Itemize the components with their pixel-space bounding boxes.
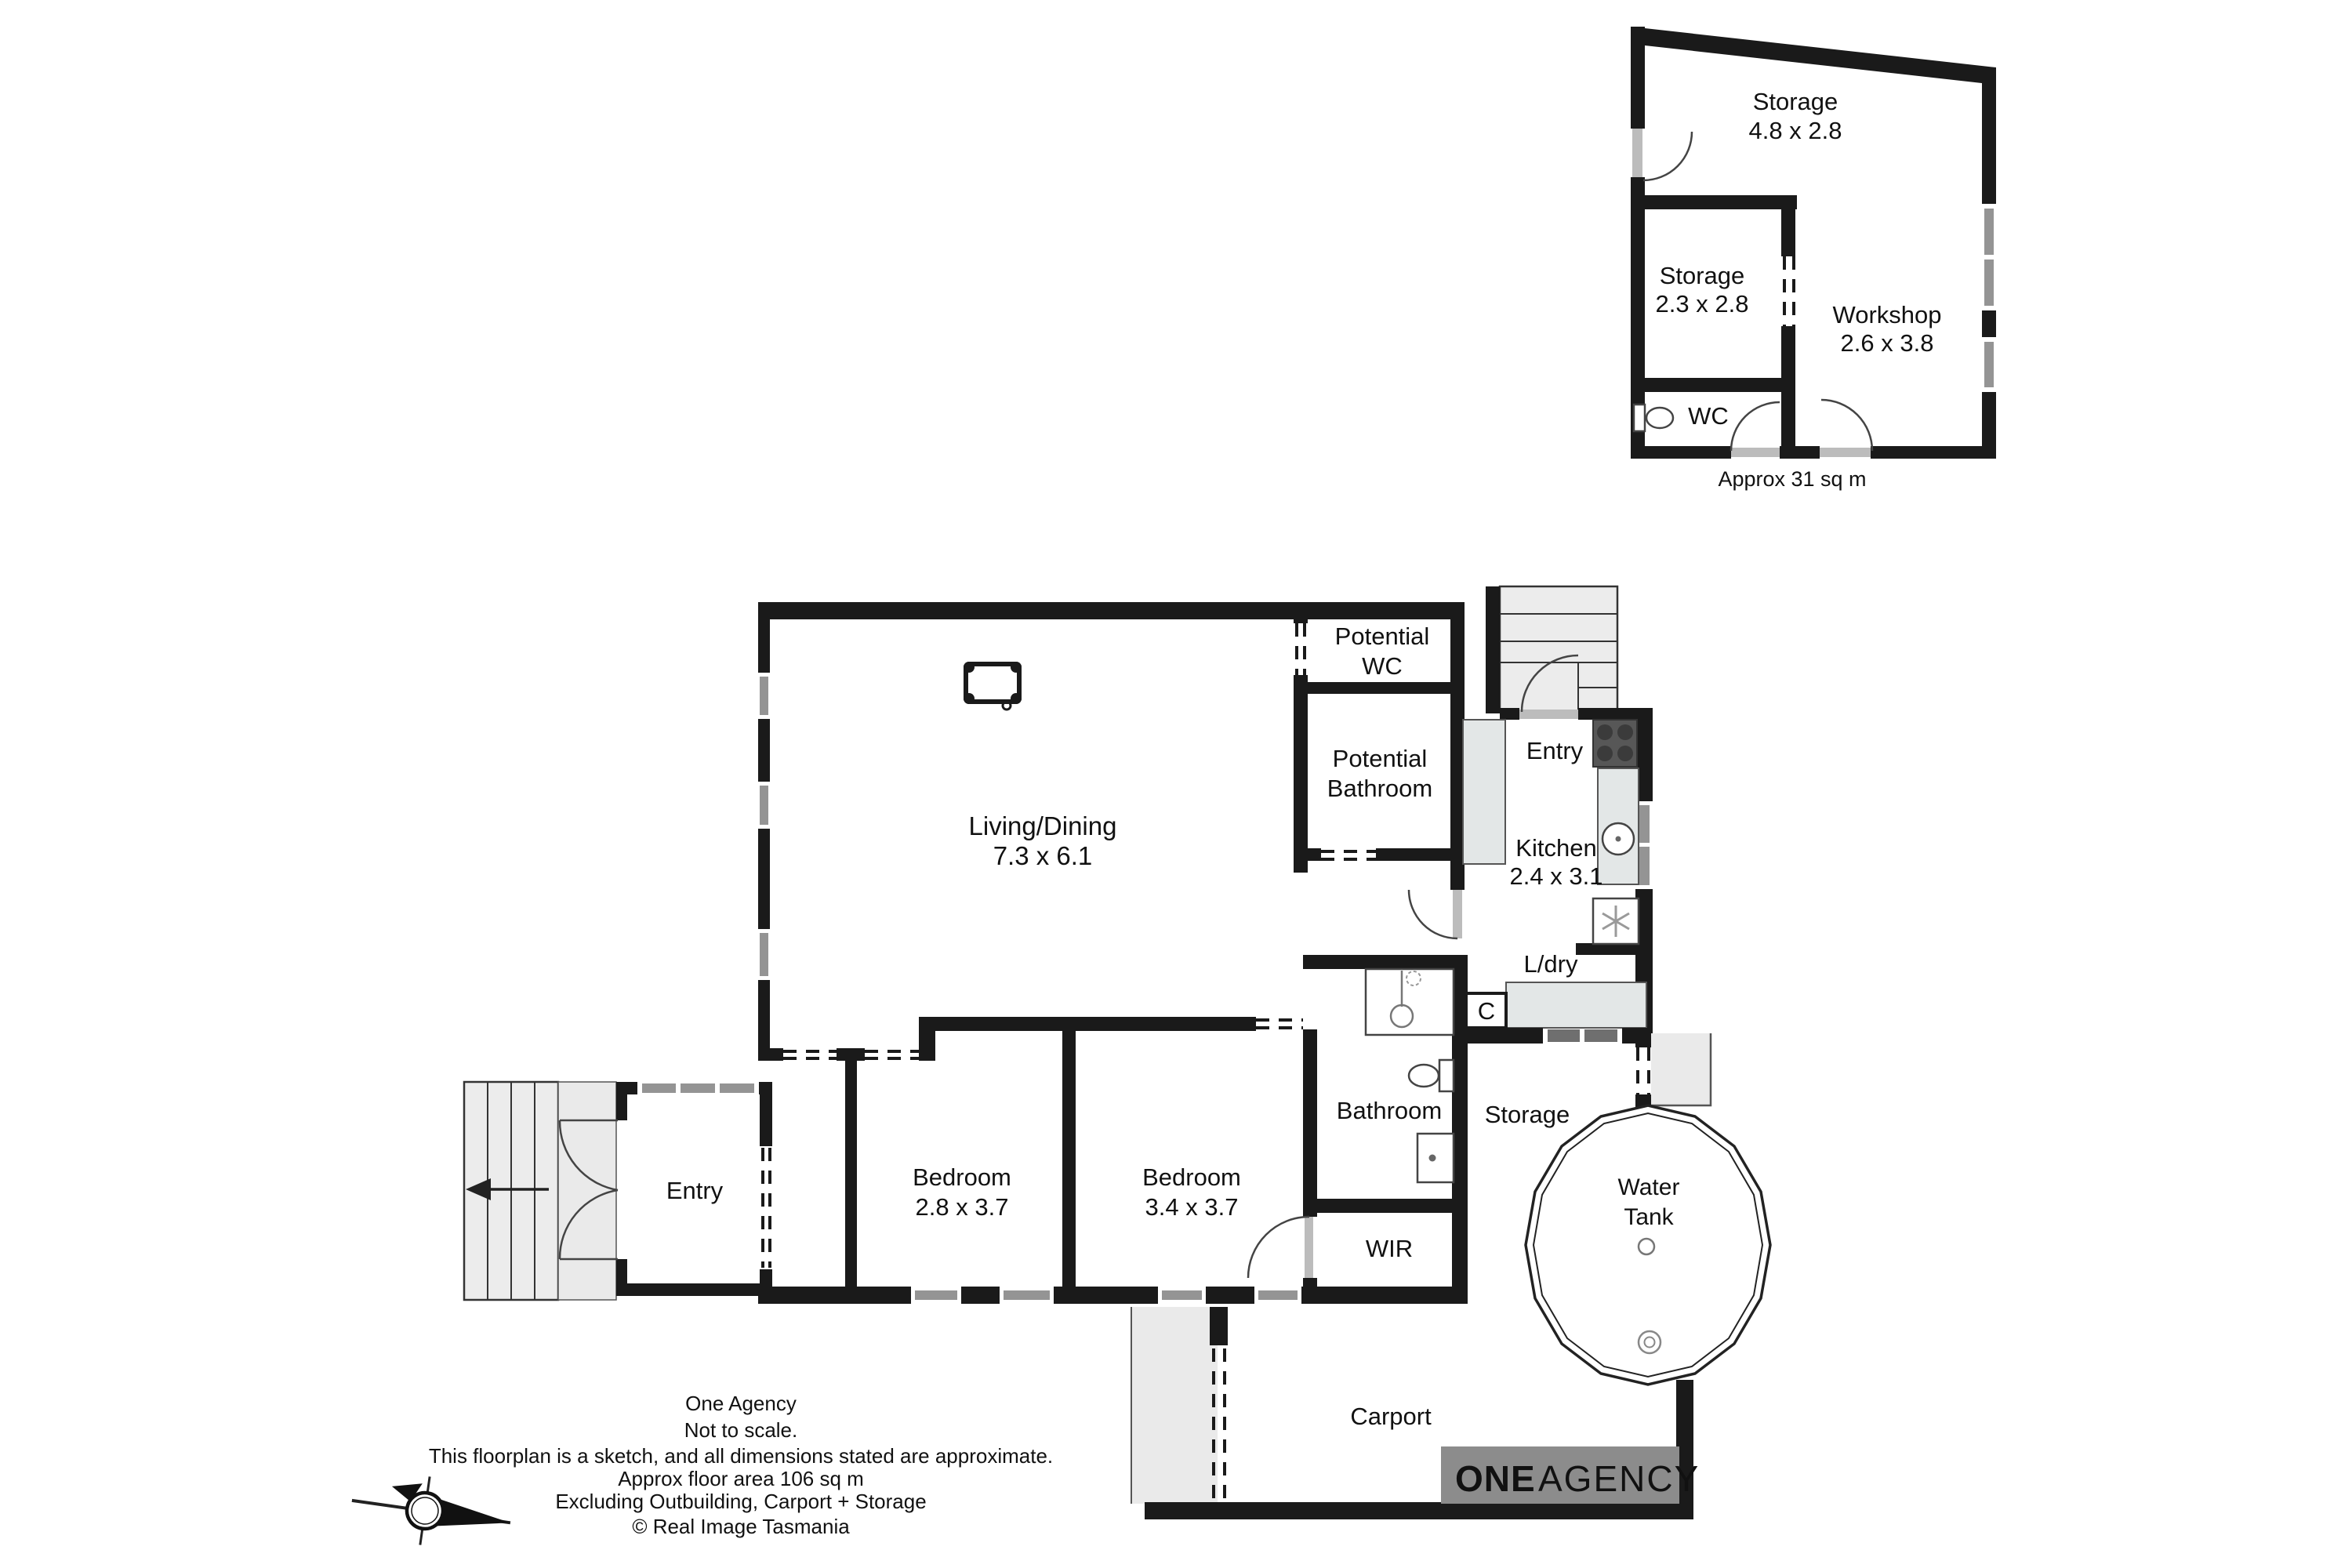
front-entry: [464, 1082, 772, 1300]
bedroom2-dims: 3.4 x 3.7: [1145, 1193, 1239, 1221]
bedroom1-dims: 2.8 x 3.7: [916, 1193, 1009, 1221]
entry-window: [637, 1083, 759, 1093]
living-dims: 7.3 x 6.1: [993, 841, 1093, 870]
outbuilding-wc-label: WC: [1688, 402, 1729, 430]
wir-label: WIR: [1366, 1235, 1413, 1262]
agency-logo: ONE AGENCY: [1441, 1446, 1700, 1504]
outbuilding-divider-horizontal: [1631, 195, 1797, 209]
outbuilding-storage-door-arc: [1643, 132, 1692, 180]
outbuilding-window-2: [1984, 337, 1994, 392]
outbuilding-left-wall: [1631, 27, 1645, 129]
water-tank-label-1: Water: [1618, 1174, 1680, 1200]
logo-agency-text: AGENCY: [1538, 1458, 1700, 1499]
footer-line-4: Approx floor area 106 sq m: [618, 1467, 864, 1490]
outbuilding-right-wall: [1982, 67, 1996, 204]
vanity-icon: [1417, 1134, 1454, 1182]
outbuilding-storage-small-dims: 2.3 x 2.8: [1656, 290, 1749, 318]
outbuilding-top-wall: [1631, 27, 1996, 85]
footer-line-2: Not to scale.: [684, 1418, 798, 1442]
outbuilding: Storage 4.8 x 2.8 Storage 2.3 x 2.8 Work…: [1631, 27, 1996, 491]
storage-label: Storage: [1485, 1101, 1570, 1128]
sink-icon: [1602, 823, 1634, 855]
house-top-wall: [758, 602, 1461, 619]
disclaimer-text: One Agency Not to scale. This floorplan …: [429, 1392, 1053, 1538]
floorplan-canvas: Storage 4.8 x 2.8 Storage 2.3 x 2.8 Work…: [0, 0, 2352, 1568]
outbuilding-workshop-label: Workshop: [1833, 301, 1942, 328]
kitchen-label: Kitchen: [1515, 834, 1596, 862]
cupboard-label: C: [1478, 997, 1495, 1025]
stove-icon: [1593, 720, 1637, 767]
outbuilding-wc-door-arc: [1731, 402, 1780, 451]
kitchen-pantry-bench: [1463, 720, 1505, 864]
water-tank-label-2: Tank: [1624, 1204, 1674, 1230]
carport-label: Carport: [1350, 1403, 1432, 1430]
potential-bathroom-label-2: Bathroom: [1327, 775, 1432, 802]
outbuilding-storage-main-dims: 4.8 x 2.8: [1749, 117, 1842, 144]
carport-walkway: [1131, 1307, 1228, 1504]
laundry-wall: [1468, 1028, 1653, 1044]
house-left-wall: [758, 602, 770, 1061]
bedroom-divider-wall: [1062, 1031, 1076, 1288]
outbuilding-workshop-door-arc: [1821, 400, 1872, 451]
laundry-label: L/dry: [1524, 950, 1578, 978]
bedroom1-left-wall: [845, 1048, 857, 1288]
outbuilding-workshop-door-sill: [1820, 448, 1871, 457]
wood-heater-icon: [964, 662, 1022, 710]
footer-line-6: © Real Image Tasmania: [632, 1515, 850, 1538]
front-entry-label: Entry: [666, 1177, 724, 1204]
outbuilding-bottom-wall: [1631, 446, 1731, 459]
water-tank: [1526, 1105, 1770, 1385]
outbuilding-area-note: Approx 31 sq m: [1718, 467, 1866, 491]
outbuilding-wc-door-sill: [1731, 448, 1780, 457]
shower-icon: [1366, 969, 1454, 1035]
kitchen-dims: 2.4 x 3.1: [1510, 862, 1603, 890]
logo-one-text: ONE: [1455, 1458, 1536, 1499]
floorplan-page: Storage 4.8 x 2.8 Storage 2.3 x 2.8 Work…: [0, 0, 2352, 1568]
bedroom1-label: Bedroom: [913, 1163, 1011, 1191]
kitchen-door: [1409, 890, 1462, 938]
laundry-bench: [1506, 982, 1646, 1028]
house-bottom-wall: [758, 1287, 1468, 1304]
bedroom2-right-wall: [1248, 1029, 1317, 1304]
main-house: Living/Dining 7.3 x 6.1 Potential WC Pot…: [464, 586, 1770, 1519]
bathroom-label: Bathroom: [1337, 1097, 1442, 1124]
toilet-icon: [1409, 1060, 1454, 1091]
potential-wc-label-2: WC: [1362, 652, 1403, 680]
footer-line-5: Excluding Outbuilding, Carport + Storage: [555, 1490, 926, 1513]
compass-icon: [347, 1466, 515, 1557]
back-entry-label: Entry: [1526, 737, 1584, 764]
outbuilding-divider-vertical: [1781, 195, 1795, 256]
fridge-icon: [1593, 898, 1639, 944]
outbuilding-storage-small-label: Storage: [1660, 262, 1745, 289]
bedroom2-label: Bedroom: [1142, 1163, 1241, 1191]
potential-bathroom-label-1: Potential: [1333, 745, 1428, 772]
outbuilding-workshop-dims: 2.6 x 3.8: [1841, 329, 1934, 357]
living-label: Living/Dining: [969, 811, 1117, 840]
footer-line-1: One Agency: [685, 1392, 797, 1415]
hall-walls: [758, 1017, 1303, 1061]
front-porch: [558, 1082, 616, 1300]
outbuilding-storage-main-label: Storage: [1753, 88, 1838, 115]
back-stairs: [1500, 586, 1617, 711]
back-door-pad: [1651, 1033, 1711, 1105]
outbuilding-wc-wall: [1631, 378, 1781, 392]
footer-line-3: This floorplan is a sketch, and all dime…: [429, 1444, 1053, 1468]
potential-wc-label-1: Potential: [1335, 622, 1430, 650]
outbuilding-toilet-icon: [1634, 405, 1673, 431]
